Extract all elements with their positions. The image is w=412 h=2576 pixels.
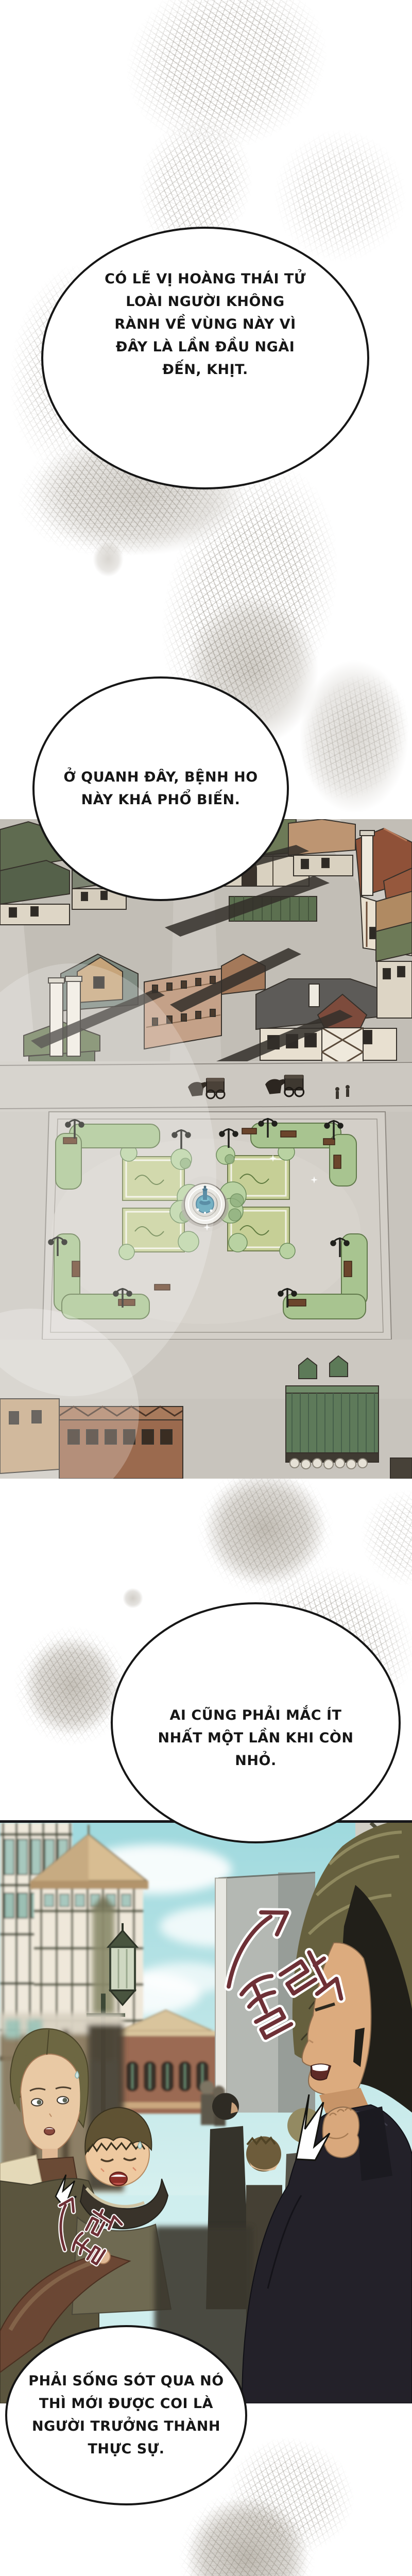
blob-bottom — [185, 2496, 309, 2576]
screentone-right-edge — [349, 1479, 412, 1597]
screentone-top-band — [101, 0, 351, 177]
bubble-1-line: ĐẾN, KHỊT. — [162, 359, 248, 381]
bubble-1-line: LOÀI NGƯỜI KHÔNG — [126, 291, 284, 313]
screentone-right-of-bubble2 — [280, 654, 412, 819]
houses-right-edge — [376, 891, 412, 1018]
screentone-bottom — [167, 2478, 327, 2576]
blob-below-panel1 — [203, 1471, 327, 1587]
bubble-4-line: THÌ MỚI ĐƯỢC COI LÀ — [39, 2393, 213, 2415]
bubble-3-line: AI CŨNG PHẢI MẮC ÍT — [170, 1704, 342, 1727]
bubble-4-line: PHẢI SỐNG SÓT QUA NÓ — [28, 2370, 224, 2393]
webtoon-page: CÓ LẼ VỊ HOÀNG THÁI TỬ LOÀI NGƯỜI KHÔNG … — [0, 0, 412, 2576]
blob-dot — [123, 1588, 143, 1608]
bubble-1-line: ĐÂY LÀ LẦN ĐẦU NGÀI — [116, 336, 295, 359]
town-aerial-art — [0, 819, 412, 1479]
bubble-4-line: NGƯỜI TRƯỞNG THÀNH — [32, 2415, 220, 2438]
blob-small-left — [93, 541, 124, 577]
bubble-1-line: RÀNH VỀ VÙNG NÀY VÌ — [114, 313, 296, 336]
street-crowd-art — [0, 1823, 412, 2403]
blob-right-of-bubble2 — [299, 659, 409, 814]
bubble-4-line: THỰC SỰ. — [88, 2438, 164, 2461]
blob-left-gap — [23, 1636, 121, 1736]
bubble-3-line: NHỎ. — [235, 1750, 276, 1772]
speech-bubble-2: Ở QUANH ĐÂY, BỆNH HO NÀY KHÁ PHỔ BIẾN. — [32, 676, 289, 901]
speech-bubble-1: CÓ LẼ VỊ HOÀNG THÁI TỬ LOÀI NGƯỜI KHÔNG … — [41, 227, 369, 489]
bubble-1-line: CÓ LẼ VỊ HOÀNG THÁI TỬ — [105, 268, 306, 291]
panel-town-aerial — [0, 819, 412, 1479]
bubble-2-line: NÀY KHÁ PHỔ BIẾN. — [81, 789, 241, 811]
bubble-2-line: Ở QUANH ĐÂY, BỆNH HO — [63, 766, 257, 789]
speech-bubble-3: AI CŨNG PHẢI MẮC ÍT NHẤT MỘT LẦN KHI CÒN… — [111, 1602, 401, 1843]
speech-bubble-4: PHẢI SỐNG SÓT QUA NÓ THÌ MỚI ĐƯỢC COI LÀ… — [5, 2325, 247, 2505]
man-fist — [323, 2107, 359, 2158]
bubble-3-line: NHẤT MỘT LẦN KHI CÒN — [158, 1727, 354, 1750]
panel-street-crowd — [0, 1820, 412, 2403]
